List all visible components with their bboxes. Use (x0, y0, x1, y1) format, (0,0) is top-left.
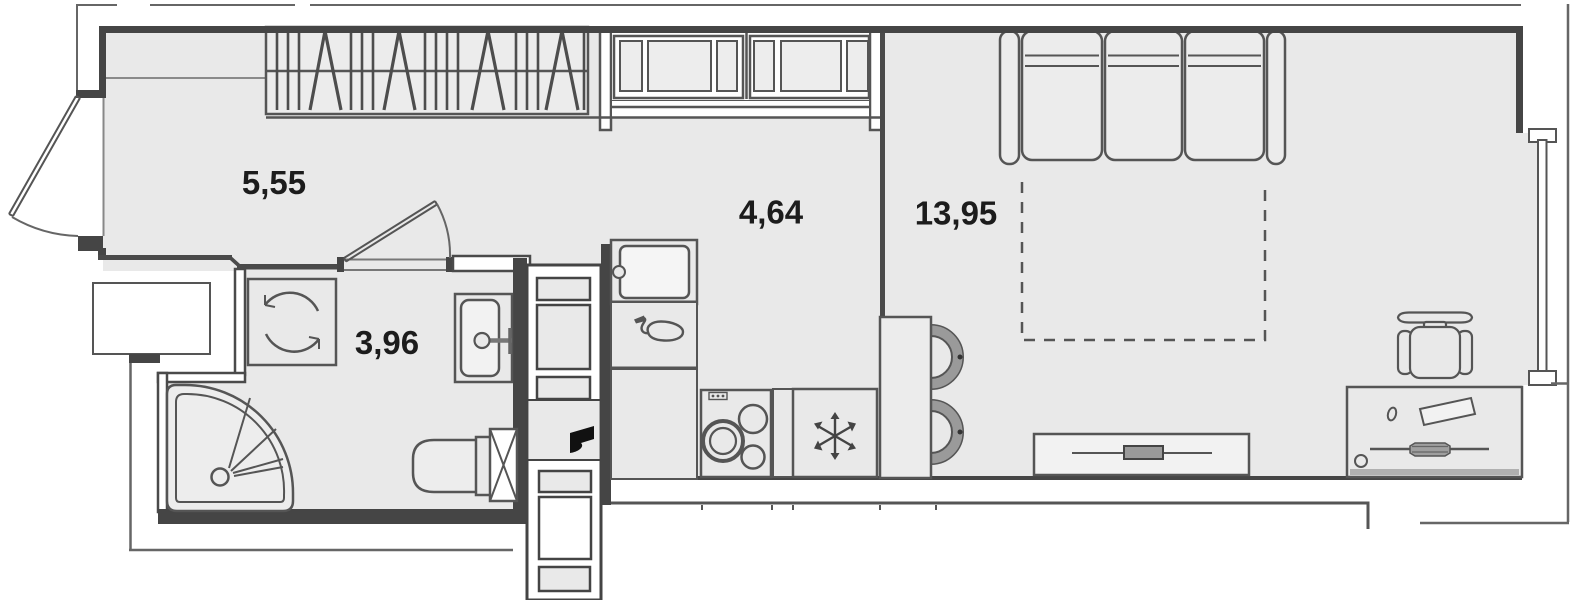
svg-text:13,95: 13,95 (915, 195, 998, 232)
svg-text:5,55: 5,55 (242, 164, 306, 201)
svg-text:3,96: 3,96 (355, 324, 419, 361)
svg-text:4,64: 4,64 (739, 194, 804, 231)
